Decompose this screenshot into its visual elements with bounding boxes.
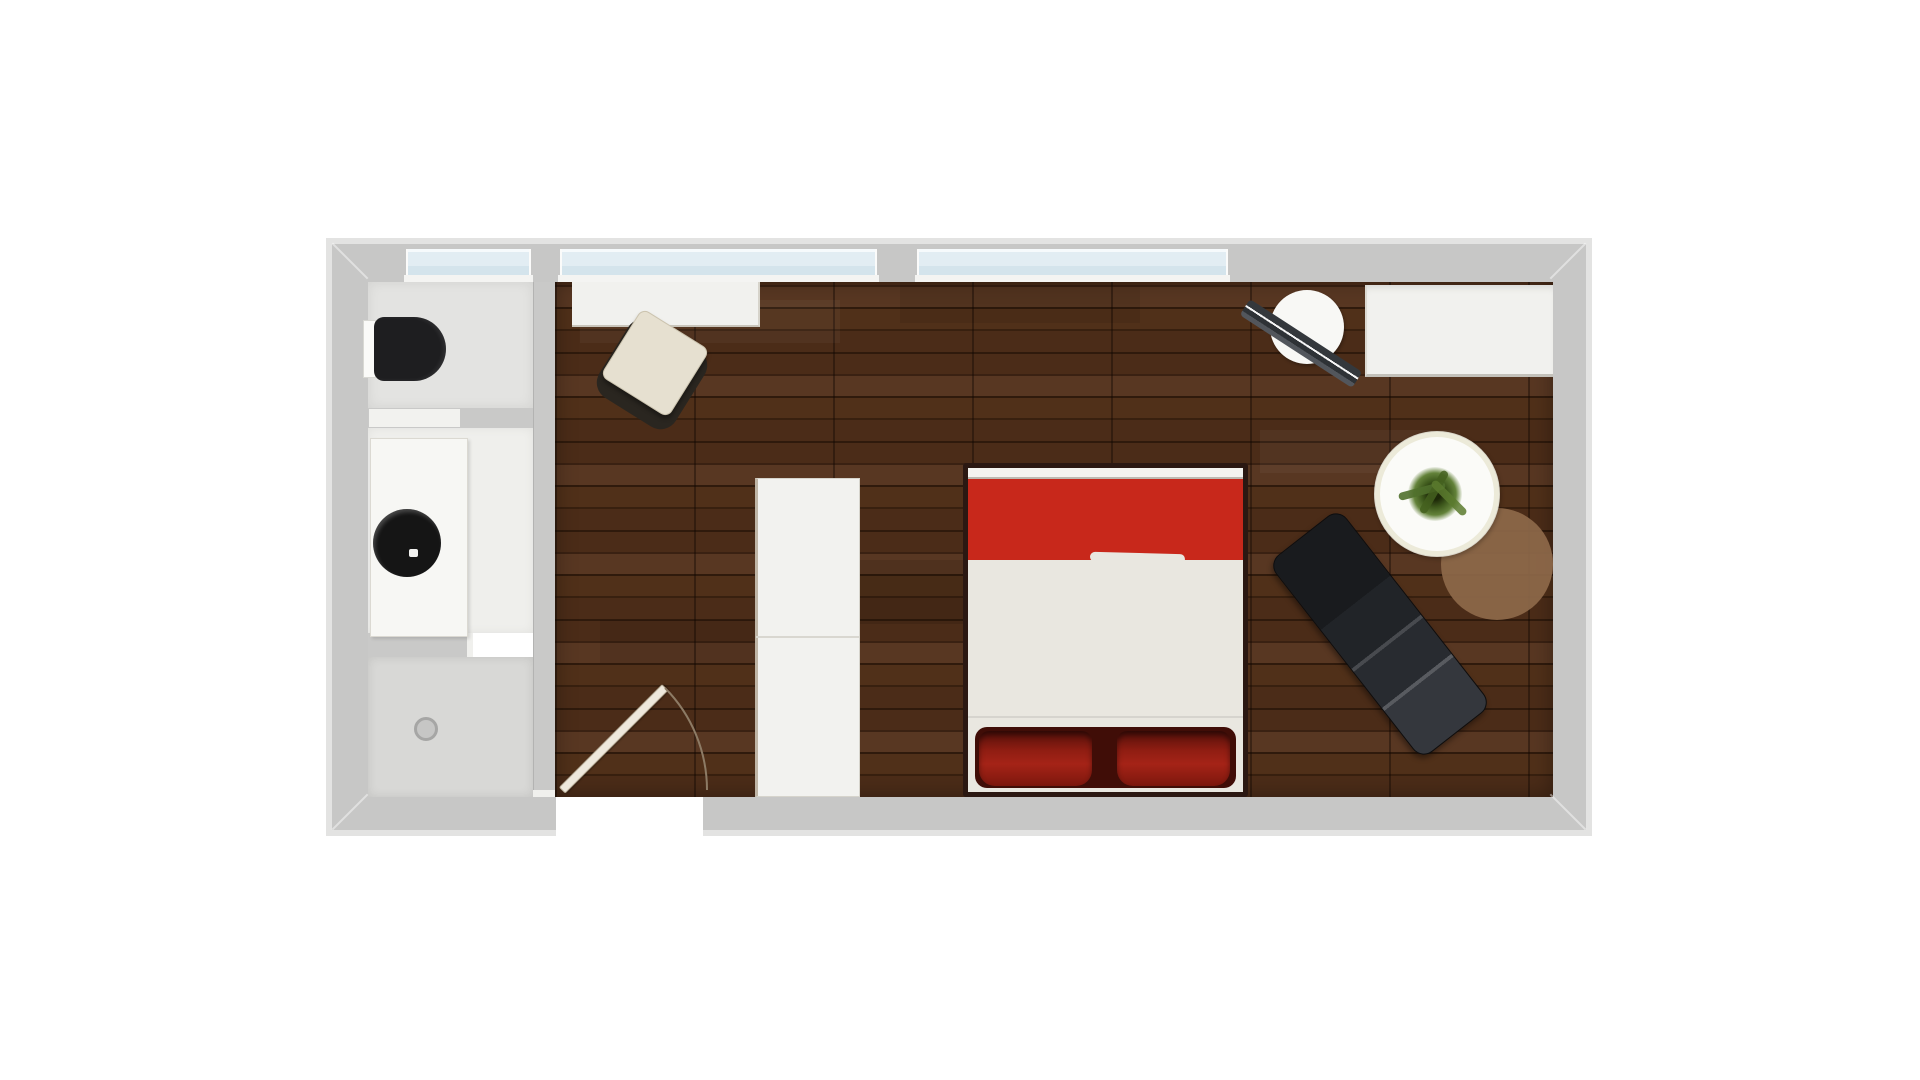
toilet-seat — [374, 317, 446, 381]
toilet-room-door — [369, 409, 460, 427]
window-main-left — [560, 249, 877, 275]
sink-soap — [409, 549, 418, 557]
window-main-right — [917, 249, 1228, 275]
bathroom-partition-wall — [533, 282, 555, 797]
window-sill-main-right — [915, 275, 1230, 282]
window-sill-bathroom — [404, 275, 533, 282]
bathroom-partition-cap — [533, 790, 555, 797]
floor-plan — [0, 0, 1920, 1080]
sink-bowl — [373, 509, 441, 577]
wall-frame — [332, 244, 1586, 830]
entry-door-opening — [556, 797, 703, 836]
window-sill-main-left — [558, 275, 879, 282]
window-bathroom — [406, 249, 531, 275]
